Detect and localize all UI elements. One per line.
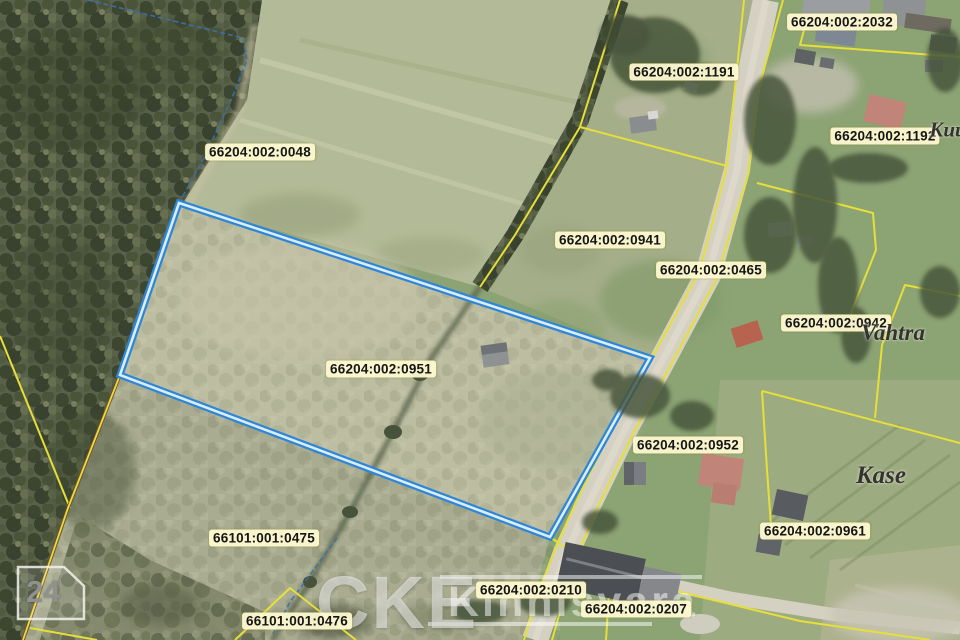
sheet-number: 24 (26, 574, 60, 610)
cadastral-map-viewport: CKE Kinnisvara 66204:002:203266204:002:1… (0, 0, 960, 640)
watermark: CKE Kinnisvara (0, 0, 960, 640)
watermark-word: Kinnisvara (448, 578, 698, 627)
map-sheet-indicator: 24 (16, 564, 88, 622)
